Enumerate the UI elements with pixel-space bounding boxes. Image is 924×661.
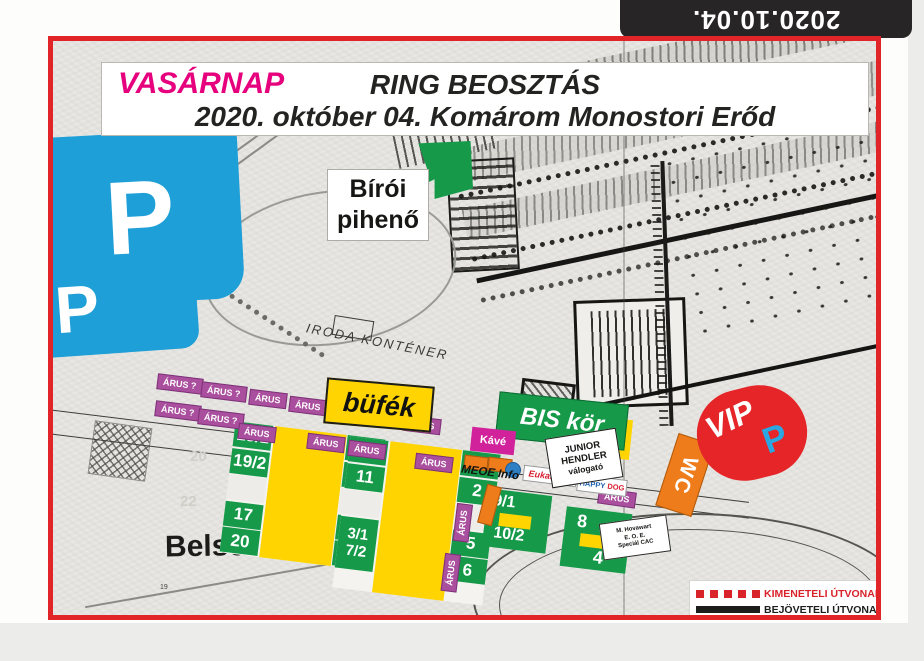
- crosshatch-patch: [88, 420, 153, 482]
- judge-rest-line2: pihenő: [337, 205, 419, 236]
- map-number-20: 20: [190, 448, 207, 465]
- legend-entry-row: BEJÖVETELI ÚTVONAL: [696, 604, 878, 616]
- ring-gap: [341, 489, 382, 518]
- judge-rest-label: Bírói pihenő: [327, 169, 429, 241]
- ring-20: 20: [220, 527, 261, 556]
- ring-gap: [226, 474, 267, 503]
- ring-10-label: 10/2: [492, 524, 525, 546]
- ring-17: 17: [223, 500, 264, 529]
- ring-11: 11: [345, 463, 386, 492]
- parking-area-small: P: [48, 254, 200, 359]
- title-box: VASÁRNAP RING BEOSZTÁS 2020. október 04.…: [101, 62, 869, 136]
- page-subtitle: 2020. október 04. Komárom Monostori Erőd: [102, 101, 868, 133]
- ring-plan-screenshot: 2020.10.04.: [0, 0, 924, 661]
- entry-route-label: BEJÖVETELI ÚTVONAL: [764, 604, 881, 616]
- route-legend: KIMENETELI ÚTVONAL BEJÖVETELI ÚTVONAL: [689, 580, 881, 620]
- title-line1: VASÁRNAP RING BEOSZTÁS: [102, 63, 868, 99]
- ring-19-2: 19/2: [229, 448, 270, 477]
- exit-route-line: [696, 590, 760, 598]
- date-tag-text: 2020.10.04.: [692, 4, 840, 35]
- judge-rest-line1: Bírói: [350, 174, 407, 205]
- parking-p-letter: P: [53, 269, 102, 348]
- legend-exit-row: KIMENETELI ÚTVONAL: [696, 588, 878, 600]
- dog-word: DOG: [607, 482, 625, 493]
- page-margin-bottom: [0, 623, 924, 661]
- buffet-label: büfék: [323, 377, 435, 432]
- date-tag: 2020.10.04.: [620, 0, 912, 38]
- map-number-19: 19: [160, 584, 168, 591]
- map-card: VASÁRNAP RING BEOSZTÁS 2020. október 04.…: [48, 36, 881, 620]
- wc-text: WC: [668, 453, 703, 498]
- hovawart-line3: Speciál CAC: [618, 539, 654, 551]
- map-number-22: 22: [180, 493, 197, 510]
- page-margin-right: [908, 0, 924, 661]
- vip-p-letter: P: [757, 415, 794, 463]
- ring-3-1-7-2: 3/1 7/2: [335, 515, 379, 571]
- ring-8-label: 8: [576, 511, 589, 533]
- exit-route-label: KIMENETELI ÚTVONAL: [764, 588, 881, 600]
- page-title: RING BEOSZTÁS: [102, 69, 868, 101]
- coffee-label: Kávé: [470, 427, 516, 455]
- entry-route-line: [696, 606, 760, 613]
